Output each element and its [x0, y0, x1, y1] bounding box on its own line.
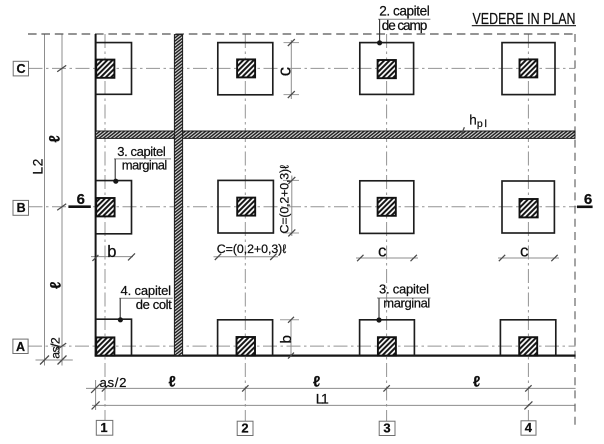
svg-text:as/2: as/2	[100, 375, 127, 390]
svg-text:b: b	[107, 243, 116, 261]
svg-text:as/2: as/2	[49, 337, 63, 359]
svg-text:C: C	[16, 62, 25, 76]
svg-text:L1: L1	[316, 391, 329, 407]
svg-text:6: 6	[584, 191, 592, 208]
svg-text:B: B	[17, 201, 26, 215]
svg-text:L2: L2	[29, 158, 45, 174]
svg-text:3. capitel: 3. capitel	[379, 281, 429, 296]
svg-text:c: c	[274, 67, 295, 76]
svg-text:b: b	[278, 335, 295, 343]
svg-text:ℓ: ℓ	[313, 373, 320, 390]
svg-text:4. capitel: 4. capitel	[121, 283, 172, 298]
svg-text:A: A	[16, 340, 25, 354]
svg-text:3: 3	[383, 420, 390, 435]
svg-text:1: 1	[100, 420, 107, 435]
svg-text:ℓ: ℓ	[168, 373, 175, 390]
svg-text:6: 6	[77, 191, 85, 208]
svg-text:marginal: marginal	[122, 157, 168, 172]
svg-text:pl: pl	[477, 118, 487, 130]
svg-text:C=(0,2+0,3)ℓ: C=(0,2+0,3)ℓ	[278, 165, 292, 234]
svg-text:2: 2	[241, 420, 248, 435]
svg-text:C=(0,2+0,3)ℓ: C=(0,2+0,3)ℓ	[217, 242, 287, 256]
svg-text:h: h	[469, 112, 477, 127]
svg-text:c: c	[520, 241, 529, 260]
svg-text:ℓ: ℓ	[48, 282, 65, 289]
svg-text:ℓ: ℓ	[47, 135, 64, 142]
svg-text:2. capitel: 2. capitel	[379, 4, 430, 19]
svg-text:de camp: de camp	[382, 18, 428, 33]
svg-text:c: c	[378, 241, 387, 260]
svg-text:ℓ: ℓ	[473, 373, 480, 390]
svg-text:de colt: de colt	[136, 297, 172, 312]
svg-text:4: 4	[525, 420, 533, 435]
